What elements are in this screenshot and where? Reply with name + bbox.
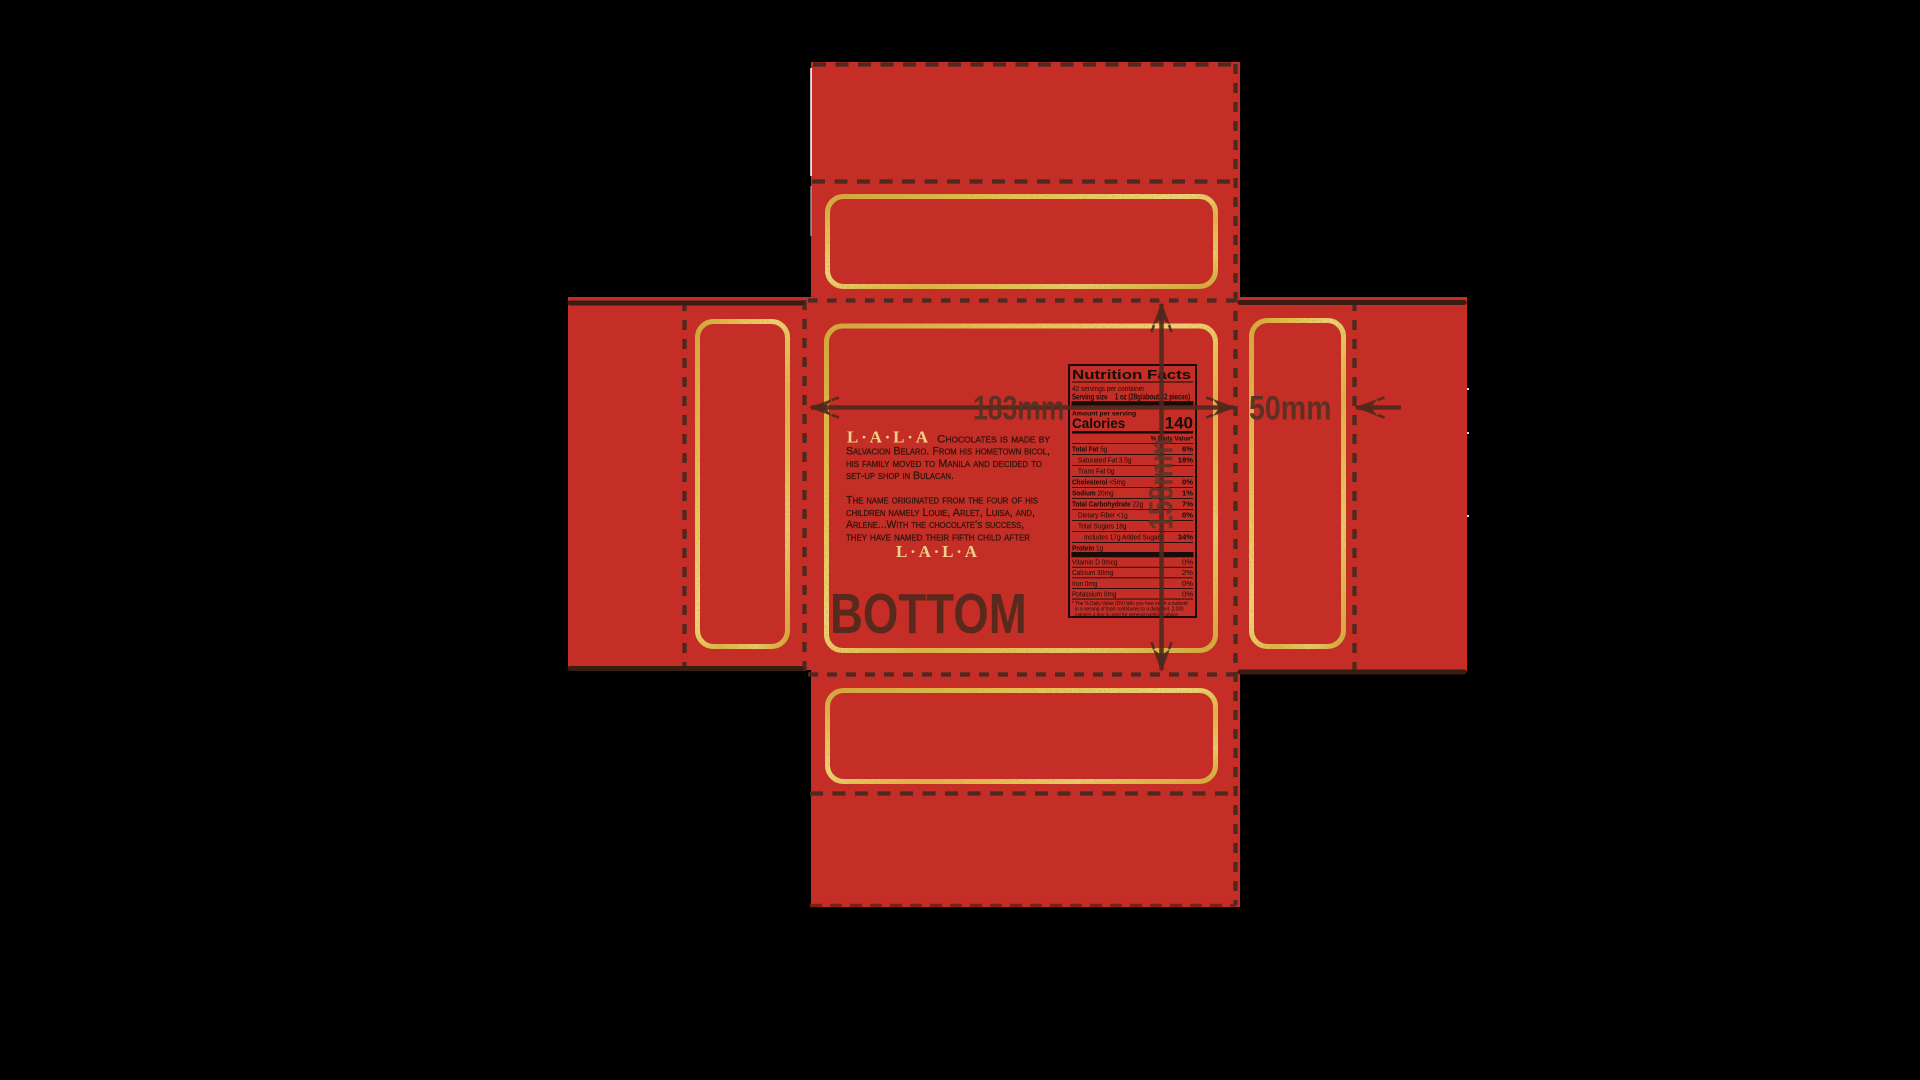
svg-text:Protein 1g: Protein 1g [1072, 545, 1103, 553]
svg-text:L·A·L·A: L·A·L·A [896, 542, 980, 561]
svg-text:2%: 2% [1182, 568, 1193, 577]
svg-text:183mm: 183mm [973, 389, 1064, 427]
svg-text:Iron 0mg: Iron 0mg [1072, 580, 1098, 588]
svg-text:Calcium 30mg: Calcium 30mg [1072, 570, 1113, 578]
svg-text:Cholesterol <5mg: Cholesterol <5mg [1072, 479, 1126, 487]
svg-text:L·A·L·A: L·A·L·A [847, 428, 931, 447]
svg-text:The name originated from the f: The name originated from the four of his [846, 495, 1038, 507]
svg-text:Includes 17g Added Sugars: Includes 17g Added Sugars [1084, 534, 1163, 542]
svg-text:6%: 6% [1182, 445, 1193, 454]
svg-text:1 oz (28g/about 32 pieces): 1 oz (28g/about 32 pieces) [1115, 394, 1190, 402]
svg-text:BOTTOM: BOTTOM [830, 581, 1027, 645]
svg-text:set-up shop in Bulacan.: set-up shop in Bulacan. [846, 470, 954, 482]
svg-text:Sodium 20mg: Sodium 20mg [1072, 490, 1114, 498]
svg-text:0%: 0% [1182, 558, 1193, 567]
svg-text:children namely Louie, Arlet,: children namely Louie, Arlet, Luisa, and… [846, 507, 1035, 519]
svg-text:Trans Fat 0g: Trans Fat 0g [1078, 468, 1114, 476]
svg-text:42 servings per container: 42 servings per container [1072, 386, 1145, 394]
svg-text:Potassium 0mg: Potassium 0mg [1072, 591, 1117, 599]
svg-text:Vitamin D 0mcg: Vitamin D 0mcg [1072, 559, 1118, 567]
svg-text:0%: 0% [1182, 511, 1193, 520]
svg-text:Calories: Calories [1072, 416, 1125, 431]
svg-text:Arlene...With the chocolate’s: Arlene...With the chocolate’s success, [846, 519, 1024, 531]
svg-text:Nutrition Facts: Nutrition Facts [1072, 368, 1191, 383]
svg-text:0%: 0% [1182, 589, 1193, 598]
svg-text:158mm: 158mm [1142, 439, 1180, 530]
svg-text:140: 140 [1165, 414, 1193, 433]
svg-text:Total Carbohydrate 22g: Total Carbohydrate 22g [1072, 501, 1143, 509]
svg-text:his family moved to Manila and: his family moved to Manila and decided t… [846, 458, 1042, 470]
svg-text:50mm: 50mm [1249, 389, 1332, 427]
svg-text:Dietary Fiber <1g: Dietary Fiber <1g [1078, 512, 1128, 520]
svg-text:34%: 34% [1178, 533, 1193, 542]
svg-text:1%: 1% [1182, 489, 1193, 498]
svg-text:Total Sugars 18g: Total Sugars 18g [1078, 523, 1127, 531]
svg-text:Chocolates is made by: Chocolates is made by [937, 433, 1051, 445]
svg-text:0%: 0% [1182, 478, 1193, 487]
svg-text:Salvacion Belaro. From his hom: Salvacion Belaro. From his hometown bico… [846, 446, 1050, 458]
svg-text:Total Fat 5g: Total Fat 5g [1072, 446, 1107, 454]
svg-text:7%: 7% [1182, 500, 1193, 509]
svg-text:0%: 0% [1182, 579, 1193, 588]
svg-text:Saturated Fat 3.5g: Saturated Fat 3.5g [1078, 457, 1132, 465]
svg-text:Serving size: Serving size [1072, 394, 1108, 402]
